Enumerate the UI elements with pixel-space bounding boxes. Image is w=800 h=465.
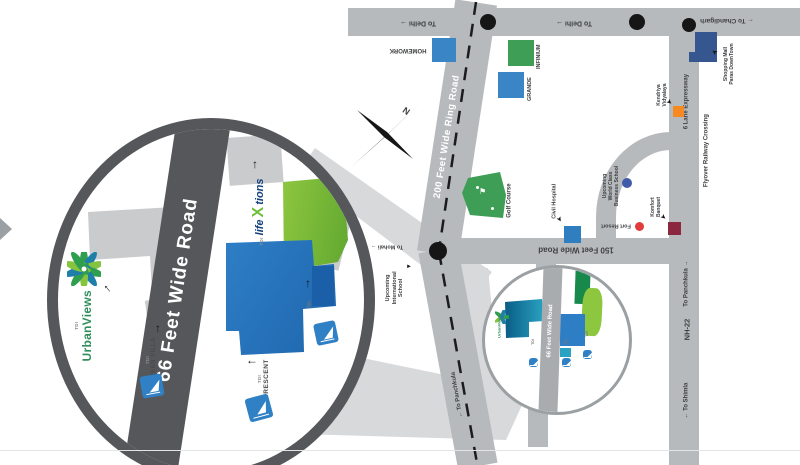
business-school-label: Upcoming World Class Business School <box>602 158 620 214</box>
urbanviews-brand: TDI UrbanViews <box>64 252 104 372</box>
inset-plot-teal <box>505 299 544 338</box>
green-villa-tdi-logo <box>139 373 164 398</box>
kendriya-vidyalaya-building <box>673 106 684 117</box>
site-inset-circle: 66 Feet Wide Road UrbanViews TDI TDI TDI <box>482 265 632 415</box>
grande-building <box>498 72 524 98</box>
civil-hospital-building <box>564 226 581 243</box>
inset-tdi-logo <box>562 358 571 367</box>
homework-building <box>432 38 456 62</box>
to-shimla-label: ← To Shimla <box>683 361 690 441</box>
tdi-plot-caption: TDI <box>306 292 311 318</box>
komfort-banquet-label: Komfort Banquet <box>650 187 662 227</box>
road-66-feet: 66 Feet Wide Road <box>125 118 231 465</box>
business-school-dot <box>622 178 632 188</box>
to-delhi-label-east: To Delhi → <box>544 18 604 26</box>
golf-course-area <box>462 172 508 222</box>
to-mohali-label: To Mohali → <box>361 243 413 250</box>
to-delhi-label-west: To Delhi → <box>388 18 448 26</box>
inset-tdi-caption: TDI <box>585 324 589 344</box>
lifextions-pre: life <box>254 219 266 235</box>
urbanviews-label: UrbanViews <box>81 290 93 361</box>
inset-tdi-caption: TDI <box>564 332 568 352</box>
magnifier-circle: 66 Feet Wide Road TDI UrbanViews <box>47 118 375 465</box>
komfort-banquet-building <box>668 222 681 235</box>
lifextions-brand: TDI life X tions <box>250 167 272 257</box>
fort-resort-label: Fort Resort <box>594 222 638 229</box>
golf-flag-icon: ⚑ <box>479 188 486 196</box>
kendriya-vidyalaya-label: Kendriya Vidyalaya <box>656 76 668 114</box>
lifextions-prefix: TDI <box>260 237 265 245</box>
flyover-crossing-label: Flyover Railway Crossing <box>703 91 710 211</box>
civil-hospital-arrow: ➤ <box>554 215 563 224</box>
intl-school-label: Upcoming International School <box>385 259 405 317</box>
expressway-label: 6 Lane Expressway <box>683 54 690 150</box>
inset-tdi-logo <box>529 358 538 367</box>
arrow-up: ↑ <box>155 322 161 334</box>
infinium-label: INFINIUM <box>536 40 543 74</box>
homework-label: HOMEWORK <box>382 46 434 53</box>
road-150-label: 150 Feet Wide Road <box>511 245 641 255</box>
shopping-mall-building-notch <box>689 52 697 62</box>
intl-school-marker: ► <box>406 264 412 270</box>
location-map: N To Delhi → To Delhi → ← To Chandigarh … <box>0 0 800 465</box>
inset-66-road: 66 Feet Wide Road <box>538 265 562 414</box>
grande-label: GRANDE <box>527 74 534 104</box>
arrow-up: ↑ <box>252 158 258 170</box>
urbanviews-prefix: TDI <box>75 322 80 330</box>
compass-n-label: N <box>398 104 414 120</box>
arrow-up: ↑ <box>305 277 311 289</box>
lifextions-x: X <box>250 207 268 218</box>
tdi-plot-logo <box>313 320 339 346</box>
inset-tdi-caption: TDI <box>531 332 535 352</box>
infinium-building <box>508 40 534 66</box>
golf-course-detail-dot <box>491 207 494 210</box>
shopping-mall-label: Shopping Mall Paras DownTown <box>723 35 735 93</box>
urbanviews-pinwheel-icon <box>67 252 101 286</box>
lifextions-post: tions <box>254 179 266 205</box>
to-chandigarh-label: ← To Chandigarh <box>690 16 764 24</box>
to-panchkula-nh-label: To Panchkula → <box>683 244 690 324</box>
golf-course-label: Golf Course <box>506 179 513 223</box>
inset-66-road-label: 66 Feet Wide Road <box>545 276 555 386</box>
arrow-left: ↑ <box>245 359 257 365</box>
inset-tdi-logo <box>583 350 592 359</box>
bottom-edge-line <box>0 450 800 451</box>
road-66-label: 66 Feet Wide Road <box>140 120 215 460</box>
plot-blue-dark <box>312 266 334 306</box>
inset-urbanviews-label: UrbanViews <box>498 309 503 343</box>
